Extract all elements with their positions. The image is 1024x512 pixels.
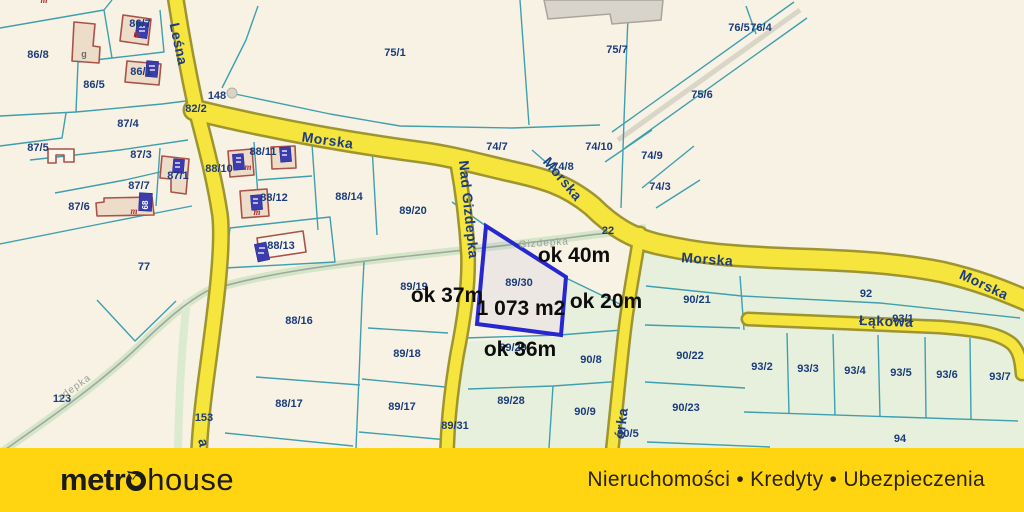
label-parcel-88-14: 88/14 — [335, 191, 363, 203]
label-parcel-22: 22 — [602, 225, 614, 237]
label-parcel-87-1: 87/1 — [167, 170, 188, 182]
label-parcel-87-7: 87/7 — [128, 180, 149, 192]
label-parcel-75-7: 75/7 — [606, 44, 627, 56]
logo-text-house: house — [147, 462, 234, 498]
label-parcel-74-10: 74/10 — [585, 141, 613, 153]
label-parcel-88-12: 88/12 — [260, 192, 288, 204]
label-parcel-88-10: 88/10 — [205, 163, 233, 175]
label-parcel-86-8: 86/8 — [27, 49, 48, 61]
label-parcel-90-23: 90/23 — [672, 402, 700, 414]
label-parcel-74-7: 74/7 — [486, 141, 507, 153]
label-parcel-88-11: 88/11 — [250, 146, 277, 158]
label-parcel-93-2: 93/2 — [751, 361, 772, 373]
footer-bar: metr house Nieruchomości • Kredyty • Ube… — [0, 448, 1024, 512]
label-house-number-68: 68 — [141, 200, 150, 209]
label-parcel-90-9: 90/9 — [574, 406, 595, 418]
label-parcel-89-28: 89/28 — [497, 395, 525, 407]
label-building-letter-m-1: m — [133, 29, 140, 39]
label-parcel-89-17: 89/17 — [388, 401, 416, 413]
logo-text-metro: metr — [60, 462, 125, 498]
label-building-letter-m-3: m — [244, 162, 251, 172]
label-parcel-75-1: 75/1 — [384, 47, 405, 59]
label-parcel-90-8: 90/8 — [580, 354, 601, 366]
label-parcel-74-9: 74/9 — [641, 150, 662, 162]
label-parcel-153: 153 — [195, 412, 213, 424]
cadastral-map[interactable]: 86/886/786/186/514882/287/487/587/387/18… — [0, 0, 1024, 448]
label-parcel-92: 92 — [860, 288, 872, 300]
label-parcel-75-6: 75/6 — [691, 89, 712, 101]
label-parcel-74-3: 74/3 — [649, 181, 670, 193]
label-building-letter-m-2: m — [130, 206, 137, 216]
label-parcel-89-31: 89/31 — [441, 420, 469, 432]
label-parcel-87-6: 87/6 — [68, 201, 89, 213]
house-arrow-icon — [124, 468, 148, 497]
metrohouse-logo: metr house — [60, 462, 234, 498]
label-building-letter-m-4: m — [253, 207, 260, 217]
footer-tagline: Nieruchomości • Kredyty • Ubezpieczenia — [587, 468, 985, 492]
label-parcel-88-17: 88/17 — [275, 398, 303, 410]
label-parcel-148: 148 — [208, 90, 226, 102]
label-parcel-87-3: 87/3 — [130, 149, 151, 161]
label-building-letter-g: g — [81, 49, 87, 59]
map-point-148 — [227, 88, 237, 98]
highlight-dim-left: ok 37m — [411, 284, 483, 307]
label-parcel-82-2: 82/2 — [185, 103, 206, 115]
screenshot: 86/886/786/186/514882/287/487/587/387/18… — [0, 0, 1024, 512]
label-parcel-93-4: 93/4 — [844, 365, 866, 377]
highlight-dim-bottom: ok 36m — [484, 338, 556, 361]
label-parcel-87-5: 87/5 — [27, 142, 48, 154]
label-parcel-90-22: 90/22 — [676, 350, 704, 362]
highlight-parcel-number: 89/30 — [505, 277, 533, 289]
label-parcel-89-20: 89/20 — [399, 205, 427, 217]
label-parcel-76-4: 76/4 — [750, 22, 772, 34]
label-parcel-94: 94 — [894, 433, 907, 445]
label-parcel-86-1: 86/1 — [130, 66, 151, 78]
highlight-area-label: 1 073 m2 — [477, 297, 566, 320]
label-parcel-88-16: 88/16 — [285, 315, 313, 327]
label-parcel-88-13: 88/13 — [267, 240, 295, 252]
label-parcel-90-21: 90/21 — [683, 294, 711, 306]
label-parcel-93-7: 93/7 — [989, 371, 1010, 383]
highlight-dim-right: ok 20m — [570, 290, 642, 313]
label-parcel-77: 77 — [138, 261, 150, 273]
label-parcel-76-5: 76/5 — [728, 22, 749, 34]
label-building-letter-m-top: m — [40, 0, 47, 5]
highlight-dim-top: ok 40m — [538, 244, 610, 267]
label-parcel-86-5: 86/5 — [83, 79, 104, 91]
label-parcel-93-6: 93/6 — [936, 369, 957, 381]
label-parcel-89-18: 89/18 — [393, 348, 421, 360]
label-street-lakowa: Łąkowa — [859, 312, 914, 330]
label-parcel-87-4: 87/4 — [117, 118, 139, 130]
label-parcel-93-5: 93/5 — [890, 367, 911, 379]
label-parcel-93-3: 93/3 — [797, 363, 818, 375]
